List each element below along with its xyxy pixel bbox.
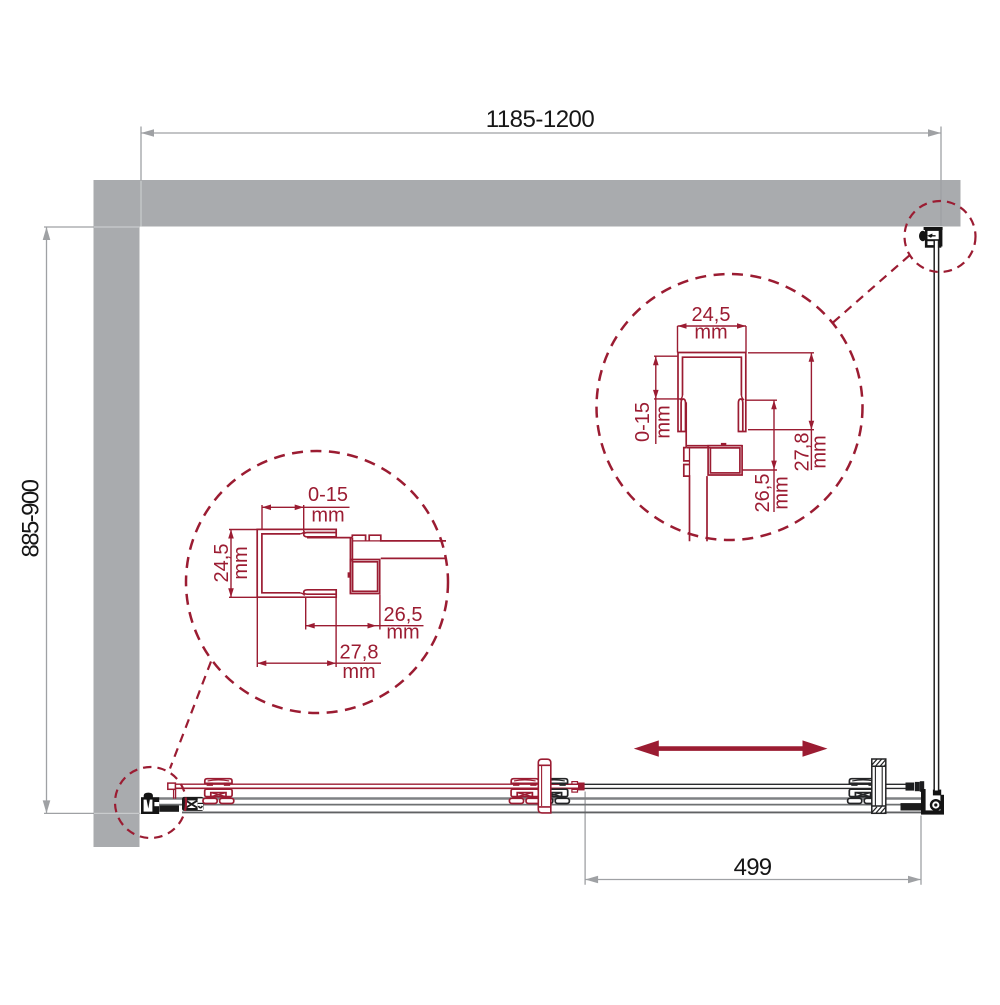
- svg-text:mm: mm: [694, 322, 727, 344]
- svg-text:1185-1200: 1185-1200: [486, 106, 595, 133]
- svg-text:0-15: 0-15: [632, 402, 654, 442]
- svg-text:mm: mm: [230, 546, 252, 579]
- svg-text:mm: mm: [311, 505, 344, 527]
- svg-text:885-900: 885-900: [18, 479, 45, 557]
- svg-text:mm: mm: [342, 661, 375, 683]
- svg-text:mm: mm: [809, 435, 831, 468]
- svg-text:mm: mm: [653, 405, 675, 438]
- svg-text:mm: mm: [771, 476, 793, 509]
- svg-text:499: 499: [734, 854, 772, 881]
- svg-text:0-15: 0-15: [308, 484, 348, 506]
- svg-text:mm: mm: [386, 622, 419, 644]
